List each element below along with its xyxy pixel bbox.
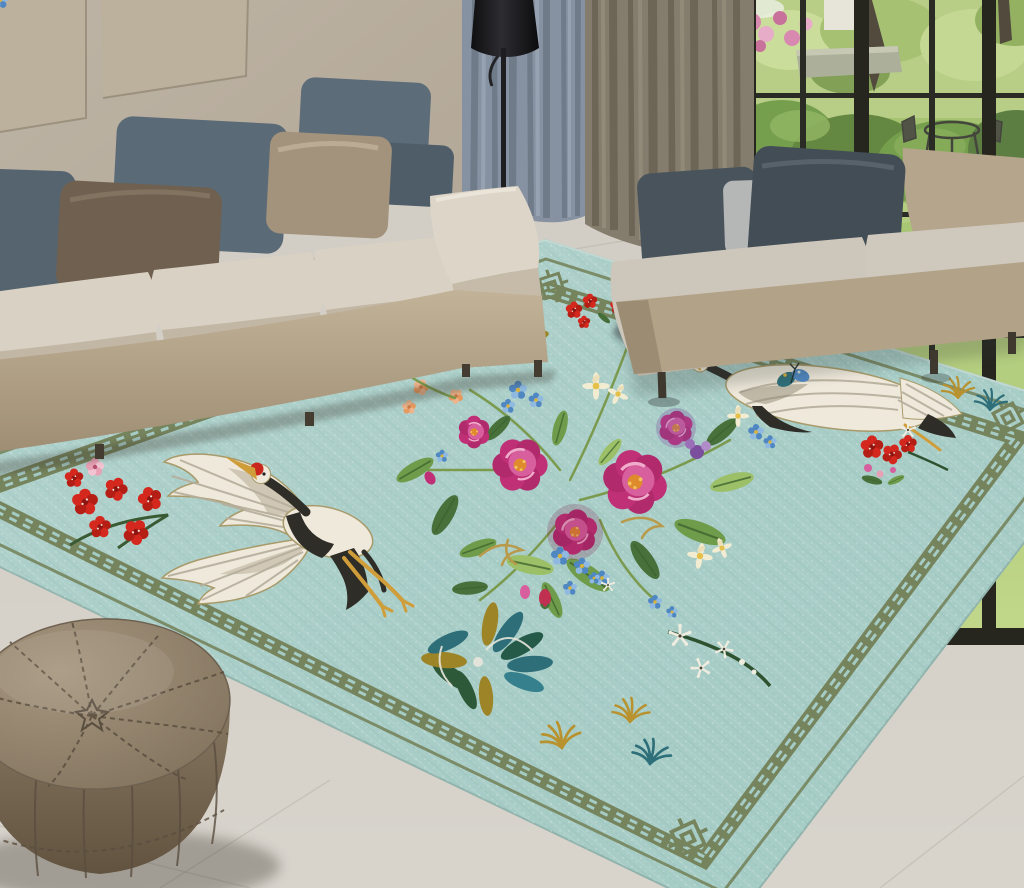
wall-art-panel-left <box>0 0 86 132</box>
living-room-scene <box>0 0 1024 888</box>
crane-eye <box>262 472 265 475</box>
